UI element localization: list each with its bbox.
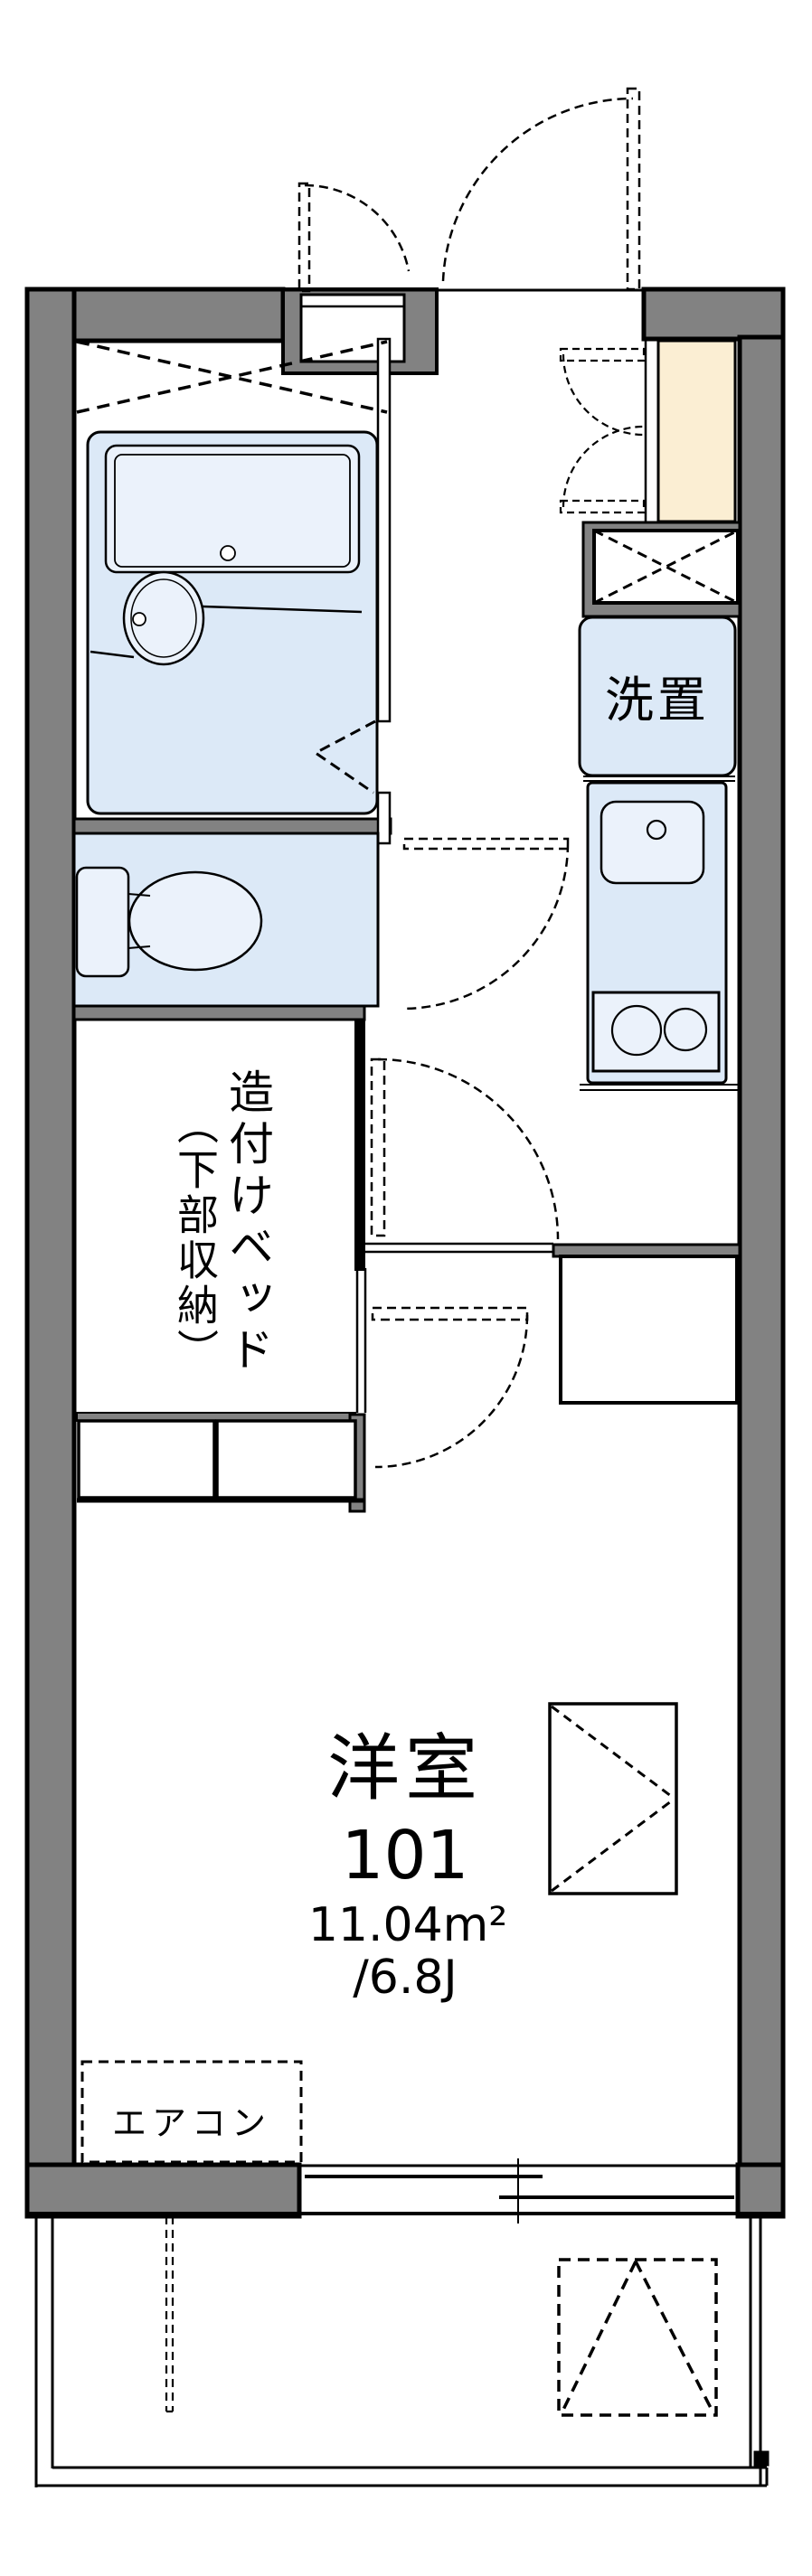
aircon-area: エアコン bbox=[82, 2062, 301, 2162]
fold-table bbox=[550, 1704, 676, 1894]
room-labels: 洋室 101 11.04m² /6.8J bbox=[308, 1726, 507, 2005]
laundry-label: 洗置 bbox=[605, 672, 710, 729]
nook-door-leaf bbox=[373, 1308, 527, 1320]
toilet-tank bbox=[77, 868, 128, 976]
built-in-bed-sub-label: （下部収納） bbox=[165, 1103, 225, 1374]
balcony bbox=[36, 2214, 768, 2487]
floor-plan: 洗置 bbox=[0, 0, 812, 2576]
bed-step-left bbox=[79, 1421, 214, 1498]
room-tatami-label: /6.8J bbox=[353, 1951, 458, 2005]
room-door-arc bbox=[378, 1059, 558, 1239]
wall-bottom-left bbox=[27, 2165, 299, 2216]
bed-step-right bbox=[217, 1421, 355, 1498]
aircon-label: エアコン bbox=[112, 2103, 271, 2143]
kitchen: 洗置 bbox=[580, 617, 738, 1090]
toilet-bowl bbox=[129, 872, 261, 970]
wall-bottom-right bbox=[738, 2165, 783, 2216]
wall-right bbox=[740, 337, 783, 2216]
wall-stub-lower bbox=[378, 793, 390, 843]
bathtub-drain bbox=[221, 546, 235, 560]
kitchen-sink bbox=[601, 802, 703, 883]
room-number-label: 101 bbox=[341, 1817, 468, 1894]
wall-bath-toilet-divider bbox=[74, 819, 391, 833]
evacuation-hatch-tri-right bbox=[636, 2261, 711, 2408]
closet-door-leaf-bottom bbox=[561, 501, 644, 512]
genkan-floor bbox=[658, 341, 735, 522]
evacuation-hatch bbox=[559, 2260, 716, 2415]
room-door-leaf bbox=[372, 1059, 384, 1236]
floor-plan-drawing: 洗置 bbox=[0, 0, 812, 2576]
meter-box-door-arc bbox=[305, 185, 409, 271]
entrance-door-arc bbox=[443, 99, 633, 281]
bed-steps bbox=[79, 1421, 355, 1498]
closet-door-arc-top bbox=[563, 354, 644, 435]
wall-left bbox=[27, 289, 74, 2216]
toilet-door-arc bbox=[402, 843, 568, 1009]
entrance-door-leaf bbox=[628, 89, 639, 289]
evacuation-hatch-tri-left bbox=[562, 2261, 636, 2411]
room-name-label: 洋室 bbox=[327, 1726, 483, 1810]
openings bbox=[357, 1244, 553, 1413]
nook-door-arc bbox=[375, 1315, 527, 1467]
kitchen-faucet bbox=[647, 821, 666, 839]
refrigerator-space bbox=[561, 1256, 737, 1403]
toilet-room bbox=[74, 833, 378, 1006]
toilet-door-leaf bbox=[404, 839, 568, 849]
room-area-label: 11.04m² bbox=[308, 1898, 507, 1952]
balcony-corner-cap bbox=[755, 2452, 768, 2465]
wall-stub-upper bbox=[378, 339, 390, 721]
interior-doors bbox=[372, 839, 568, 1467]
washbasin-drain bbox=[133, 613, 146, 625]
fold-table-box bbox=[550, 1704, 676, 1894]
wall-bed-nook-right bbox=[355, 1020, 364, 1270]
closet-door-arc-bottom bbox=[563, 427, 644, 507]
wall-top-right bbox=[644, 289, 783, 339]
bathroom bbox=[88, 432, 377, 813]
closet-door-leaf-top bbox=[561, 349, 644, 361]
wall-toilet-bed-divider bbox=[74, 1006, 364, 1020]
meter-box-door-leaf bbox=[299, 183, 309, 291]
